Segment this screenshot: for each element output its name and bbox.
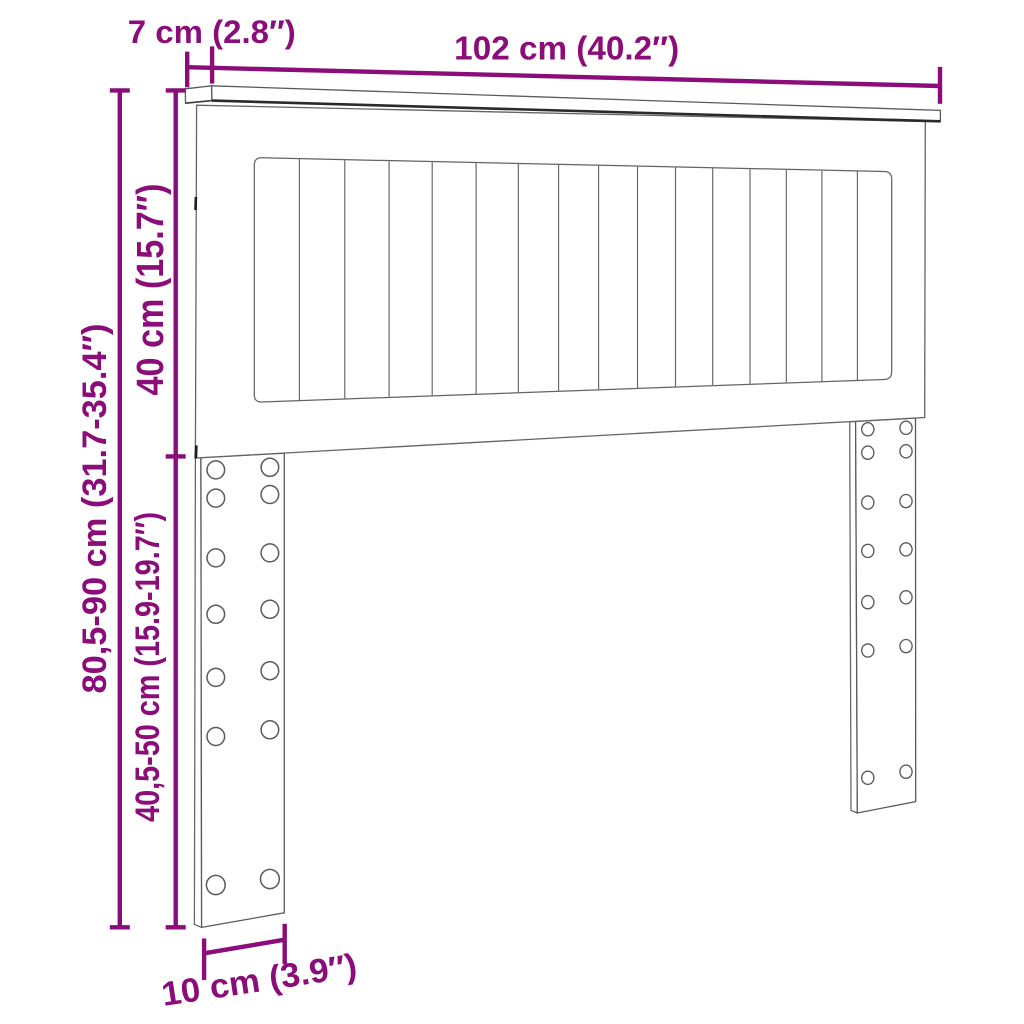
svg-text:7 cm (2.8″): 7 cm (2.8″): [128, 14, 296, 50]
svg-text:102 cm (40.2″): 102 cm (40.2″): [454, 30, 679, 67]
svg-text:40,5-50 cm (15.9-19.7″): 40,5-50 cm (15.9-19.7″): [129, 512, 167, 822]
svg-text:80,5-90 cm (31.7-35.4″): 80,5-90 cm (31.7-35.4″): [76, 324, 114, 694]
svg-text:40 cm (15.7″): 40 cm (15.7″): [130, 184, 172, 396]
